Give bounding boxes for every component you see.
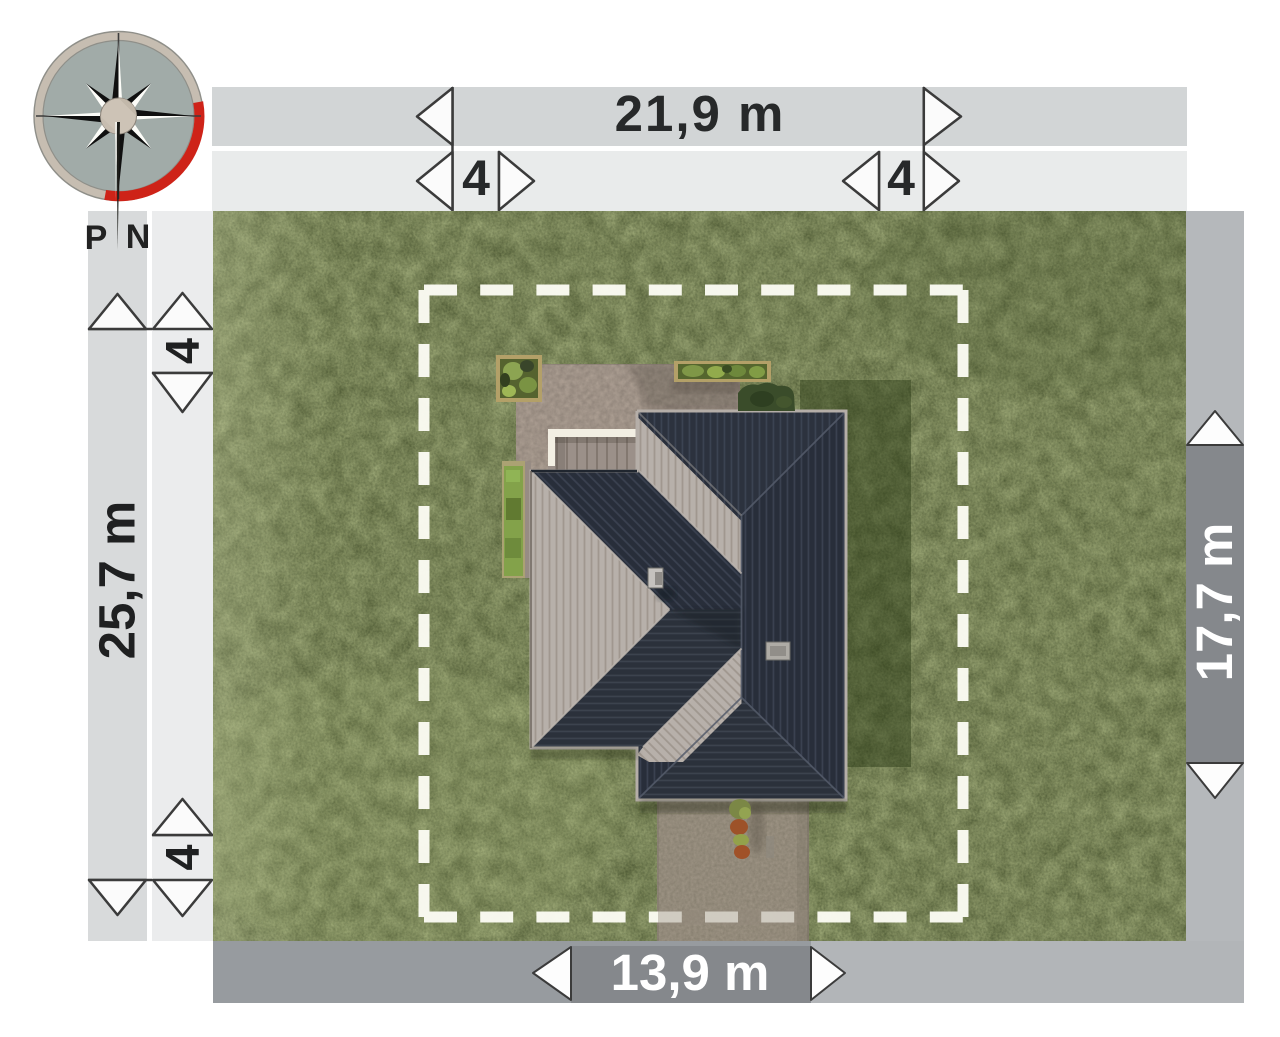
svg-text:13,9 m: 13,9 m [611,944,770,1001]
svg-text:4: 4 [887,150,915,206]
svg-text:4: 4 [156,338,209,364]
svg-text:21,9 m: 21,9 m [615,85,786,142]
svg-text:17,7 m: 17,7 m [1186,523,1243,682]
svg-text:P: P [85,219,108,257]
svg-text:N: N [126,218,151,256]
svg-text:25,7 m: 25,7 m [89,501,146,660]
svg-text:4: 4 [462,150,490,206]
svg-text:4: 4 [156,844,209,870]
